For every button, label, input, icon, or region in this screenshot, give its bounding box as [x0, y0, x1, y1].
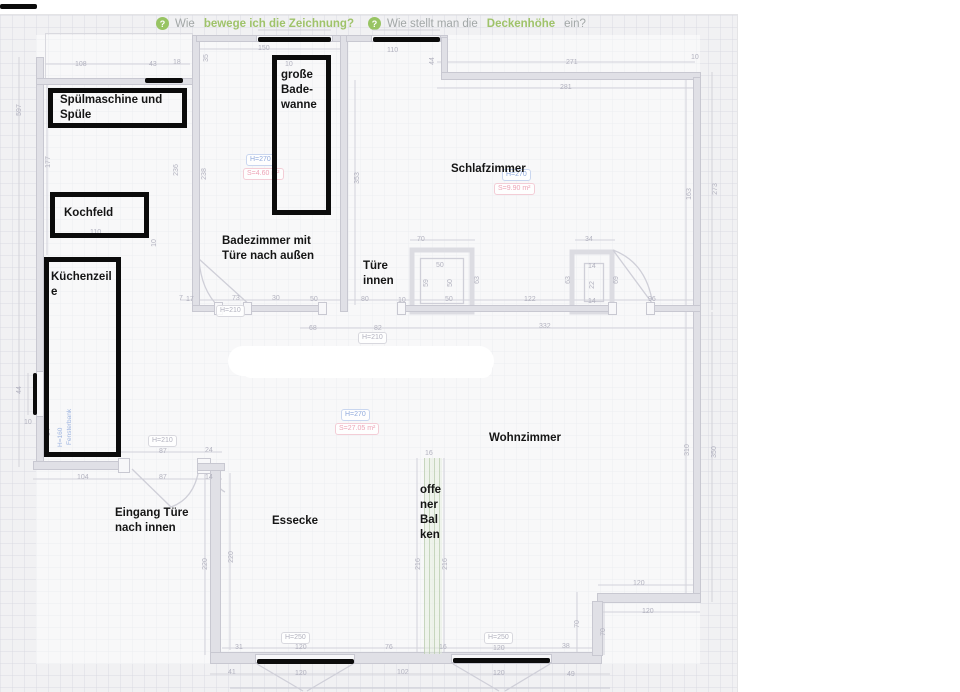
annotation-label: Küchenzeil e	[51, 270, 112, 300]
wall	[693, 77, 701, 602]
dimension-label: 310	[684, 444, 692, 456]
wall	[650, 305, 701, 312]
dimension-label: 50	[310, 296, 318, 304]
dimension-label: 73	[232, 295, 240, 303]
floorplan-app-screenshot: ? Wie bewege ich die Zeichnung? ? Wie st…	[0, 0, 960, 692]
dimension-label: 59	[423, 279, 431, 287]
dimension-label: 14	[588, 263, 596, 271]
annotation-label: Eingang Türe nach innen	[115, 506, 188, 536]
whiteout-patch	[242, 360, 492, 378]
help-link-ceiling-height[interactable]: ? Wie stellt man die Deckenhöhe ein?	[368, 17, 586, 30]
question-icon: ?	[156, 17, 169, 30]
dimension-label: 177	[45, 156, 53, 168]
height-label: H=210	[358, 332, 387, 344]
dimension-label: 18	[173, 59, 181, 67]
dimension-label: 87	[159, 448, 167, 456]
wall	[210, 470, 221, 658]
dimension-label: 110	[387, 47, 398, 55]
dimension-label: 16	[439, 644, 447, 652]
help-link-move-drawing[interactable]: ? Wie bewege ich die Zeichnung?	[156, 17, 363, 30]
dimension-label: 34	[585, 236, 593, 244]
height-label: H=210	[148, 435, 177, 447]
dimension-label: 69	[613, 276, 621, 284]
dimension-label: 10	[151, 239, 159, 247]
door-jamb	[118, 458, 130, 473]
dimension-label: 216	[415, 558, 423, 570]
dimension-label: 24	[205, 447, 213, 455]
dimension-label: 50	[436, 262, 444, 270]
annotation-label: Spülmaschine und Spüle	[60, 93, 162, 123]
dimension-label: 63	[565, 276, 573, 284]
annotation-label: große Bade- wanne	[281, 68, 317, 113]
dimension-label: 220	[228, 551, 236, 563]
dimension-label: 30	[272, 295, 280, 303]
dimension-label: 236	[173, 164, 181, 176]
dimension-label: 17	[186, 296, 194, 304]
height-label: H=250	[484, 632, 513, 644]
height-label: S=27.05 m²	[335, 423, 379, 435]
dimension-label: 44	[429, 57, 437, 65]
help-text-prefix: Wie	[175, 18, 195, 30]
dimension-label: 38	[562, 643, 570, 651]
dimension-label: 14	[588, 298, 596, 306]
height-label: H=270	[341, 409, 370, 421]
dimension-label: 70	[574, 620, 582, 628]
question-icon: ?	[368, 17, 381, 30]
annotation-label: Wohnzimmer	[489, 431, 561, 446]
wall	[248, 305, 324, 312]
dimension-label: 70	[600, 628, 608, 636]
dimension-label: 281	[560, 84, 572, 92]
dimension-label: 216	[442, 558, 450, 570]
wall	[340, 35, 348, 312]
annotation-bar	[257, 659, 354, 664]
dimension-label: 238	[201, 168, 209, 180]
dimension-label: 10	[691, 54, 699, 62]
help-text-highlight: bewege ich die Zeichnung?	[204, 18, 354, 30]
dimension-label: 163	[686, 188, 694, 200]
dimension-label: 76	[385, 644, 393, 652]
wall	[441, 72, 701, 80]
dimension-label: 63	[474, 276, 482, 284]
dimension-label: 597	[16, 104, 24, 116]
dimension-label: 22	[589, 281, 597, 289]
dimension-label: 332	[539, 323, 551, 331]
dimension-label: 102	[397, 669, 409, 677]
dimension-label: 120	[295, 670, 307, 678]
balcony-outline	[45, 33, 193, 80]
annotation-bar	[0, 4, 37, 9]
dimension-label: 50	[447, 279, 455, 287]
dimension-label: 80	[361, 296, 369, 304]
dimension-label: 120	[633, 580, 645, 588]
dimension-label: 353	[354, 172, 362, 184]
annotation-label: Kochfeld	[64, 206, 113, 221]
annotation-bar	[373, 37, 440, 42]
dimension-label: 122	[524, 296, 536, 304]
annotation-label: Essecke	[272, 514, 318, 529]
door-jamb	[608, 302, 617, 315]
dimension-label: 273	[712, 183, 720, 195]
annotation-bar	[145, 78, 183, 83]
dimension-label: 10	[398, 297, 406, 305]
dimension-label: 350	[711, 446, 719, 458]
wall	[192, 35, 200, 312]
dimension-label: 16	[425, 450, 433, 458]
height-label: H=210	[216, 305, 245, 317]
dimension-label: 43	[149, 61, 157, 69]
annotation-bar	[258, 37, 331, 42]
annotation-label: Badezimmer mit Türe nach außen	[222, 234, 314, 264]
dimension-label: 70	[417, 236, 425, 244]
dimension-label: 220	[202, 558, 210, 570]
dimension-label: 7	[179, 295, 183, 303]
annotation-label: Türe innen	[363, 259, 394, 289]
dimension-label: 150	[258, 45, 270, 53]
height-label: H=250	[281, 632, 310, 644]
wall	[33, 461, 121, 470]
dimension-label: 87	[159, 474, 167, 482]
dimension-label: 50	[445, 296, 453, 304]
dimension-label: 41	[228, 669, 236, 677]
dimension-label: 120	[493, 645, 505, 653]
dimension-label: 14	[205, 474, 213, 482]
window-frame	[36, 371, 44, 417]
dimension-label: 31	[235, 644, 243, 652]
help-text-suffix: ein?	[564, 18, 586, 30]
wall	[597, 593, 701, 603]
dimension-label: 35	[203, 54, 211, 62]
dimension-label: 68	[309, 325, 317, 333]
dimension-label: 44	[16, 386, 24, 394]
height-label: H=270	[246, 154, 275, 166]
height-label: S=9.90 m²	[494, 183, 535, 195]
wall	[402, 305, 612, 312]
dimension-label: 49	[567, 671, 575, 679]
dimension-label: 104	[77, 474, 89, 482]
dimension-label: 10	[24, 419, 32, 427]
annotation-label: Schlafzimmer	[451, 162, 526, 177]
dimension-label: 120	[295, 644, 307, 652]
dimension-label: 120	[493, 670, 505, 678]
annotation-label: offe ner Bal ken	[420, 483, 441, 543]
dimension-label: 96	[648, 296, 656, 304]
annotation-bar	[453, 658, 550, 663]
help-text-highlight: Deckenhöhe	[487, 18, 555, 30]
help-text-prefix: Wie stellt man die	[387, 18, 478, 30]
dimension-label: 120	[642, 608, 654, 616]
dimension-label: 108	[75, 61, 87, 69]
annotation-bar	[33, 373, 37, 415]
door-jamb	[318, 302, 327, 315]
dimension-label: 271	[566, 59, 578, 67]
